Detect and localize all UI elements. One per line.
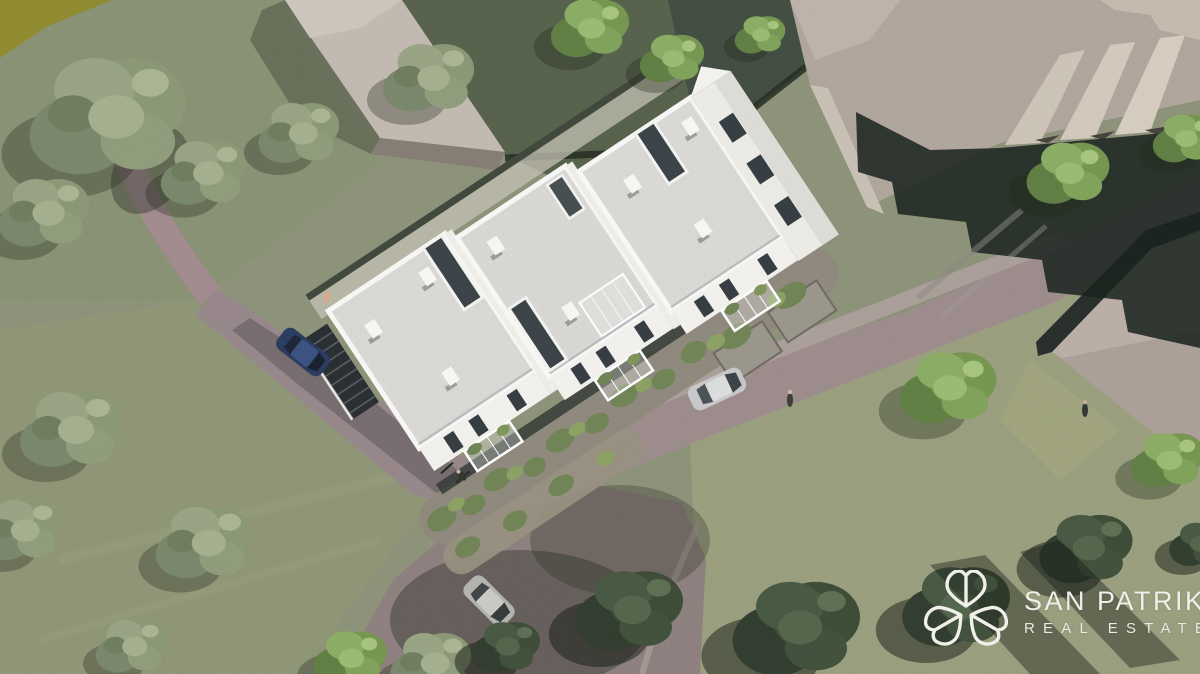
grain-overlay bbox=[0, 0, 1200, 674]
render-scene bbox=[0, 0, 1200, 674]
architectural-render: SAN PATRIK REAL ESTATE bbox=[0, 0, 1200, 674]
